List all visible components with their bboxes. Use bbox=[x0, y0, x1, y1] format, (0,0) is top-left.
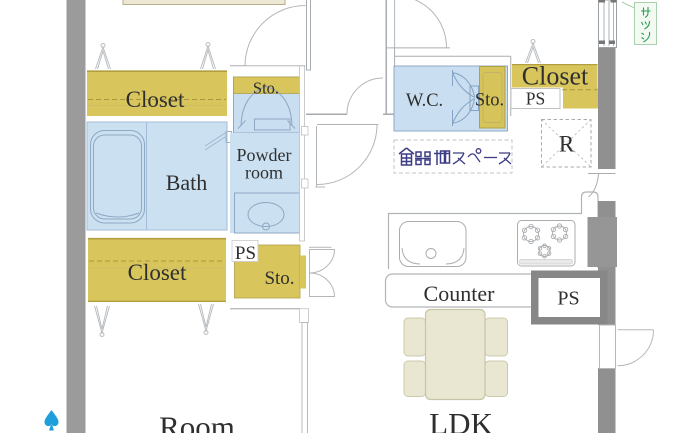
svg-text:room: room bbox=[245, 163, 283, 183]
svg-text:LDK: LDK bbox=[429, 406, 493, 433]
svg-text:PS: PS bbox=[526, 89, 545, 109]
svg-text:Counter: Counter bbox=[424, 281, 496, 306]
svg-text:Closet: Closet bbox=[128, 260, 187, 285]
svg-text:Bath: Bath bbox=[166, 170, 208, 195]
svg-text:PS: PS bbox=[557, 288, 579, 310]
svg-text:Sto.: Sto. bbox=[253, 79, 279, 98]
svg-text:Sto.: Sto. bbox=[475, 91, 504, 111]
svg-text:Closet: Closet bbox=[126, 87, 185, 112]
svg-text:Sto.: Sto. bbox=[264, 268, 294, 289]
svg-text:R: R bbox=[559, 132, 575, 157]
svg-text:Room: Room bbox=[159, 410, 235, 433]
svg-text:W.C.: W.C. bbox=[406, 91, 443, 111]
svg-text:Closet: Closet bbox=[522, 62, 589, 91]
svg-text:PS: PS bbox=[235, 243, 256, 264]
